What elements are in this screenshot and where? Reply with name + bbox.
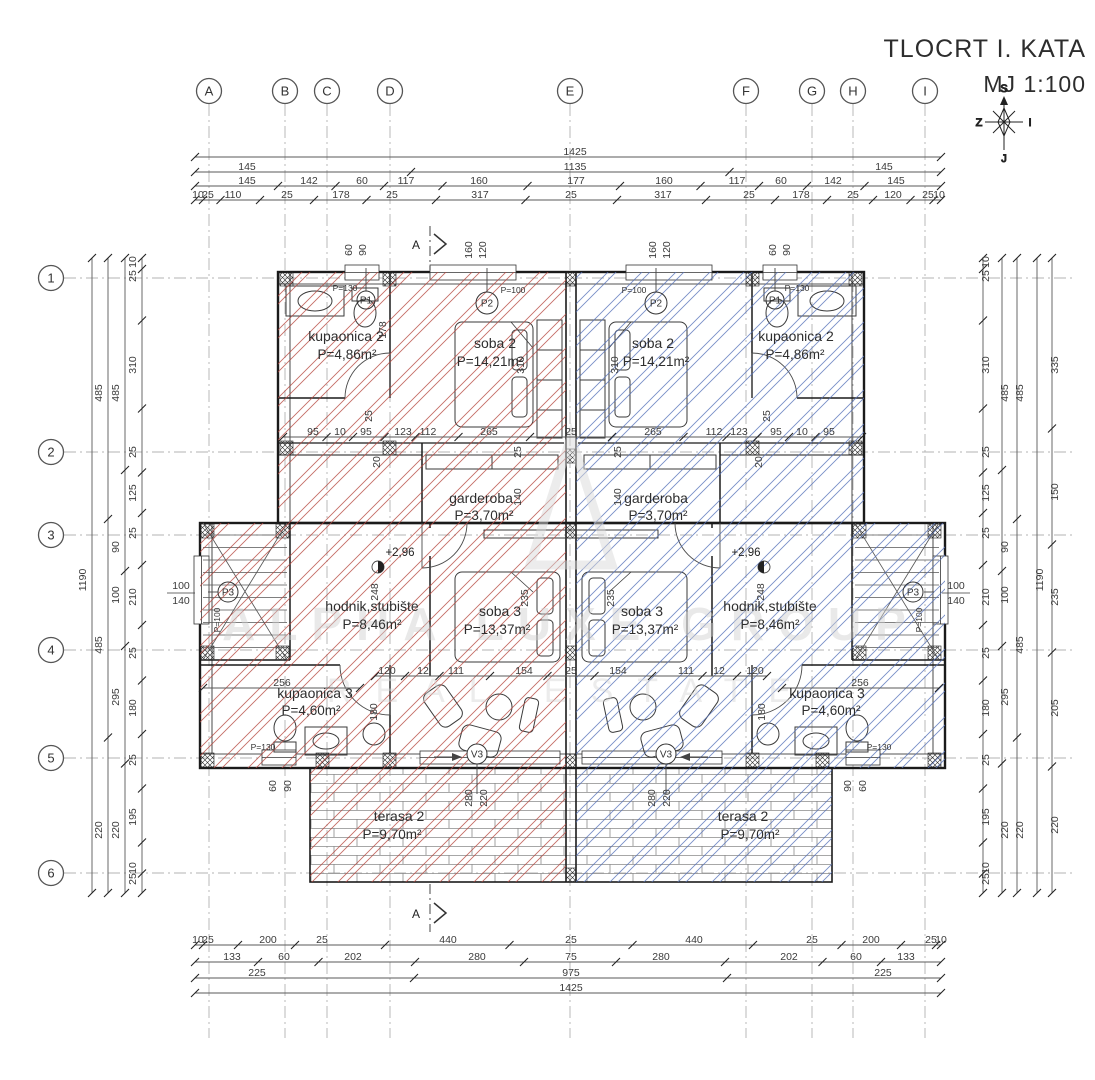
dim-label: 25 — [202, 189, 214, 201]
level-marker-label: +2,96 — [385, 547, 414, 559]
dim-label: 20 — [371, 456, 383, 468]
dim-label: 1425 — [559, 982, 583, 994]
dim-label: 25 — [565, 189, 577, 201]
dim-label: 10 — [127, 862, 139, 874]
dim-label: 25 — [386, 189, 398, 201]
dim-label: 220 — [110, 821, 122, 839]
dim-label: 180 — [368, 703, 380, 721]
dim-label: 235 — [1049, 588, 1061, 606]
dim-label: 220 — [661, 789, 673, 807]
dim-label: 25 — [612, 446, 624, 458]
dim-label: 335 — [1049, 356, 1061, 374]
dim-label: 1425 — [563, 146, 587, 158]
dim-label: 111 — [448, 665, 464, 677]
dim-label: 95 — [770, 426, 782, 438]
dim-label: 10 — [980, 256, 992, 268]
room-area-label: P=8,46m² — [343, 617, 402, 632]
room-area-label: P=14,21m² — [623, 354, 690, 369]
dim-label: 10 — [980, 862, 992, 874]
grid-bubble-label-I: I — [923, 84, 927, 99]
dim-label: 1190 — [77, 569, 89, 592]
dim-label: 220 — [478, 789, 490, 807]
dim-label: 178 — [332, 189, 350, 201]
dim-label: 60 — [356, 175, 368, 187]
dim-label: 25 — [980, 647, 992, 659]
dim-label: 25 — [565, 665, 577, 677]
room-name-label: soba 3 — [621, 603, 663, 619]
hatch-line — [0, 230, 310, 900]
dim-label: 235 — [605, 589, 617, 607]
dim-label: 25 — [980, 446, 992, 458]
dim-label: 120 — [746, 665, 764, 677]
dim-label: 145 — [238, 161, 256, 173]
grid-bubble-label-D: D — [385, 84, 394, 99]
dim-label: 25 — [363, 410, 375, 422]
dim-label: 125 — [980, 484, 992, 502]
room-area-label: P=4,60m² — [802, 703, 861, 718]
compass-north-label: S — [1000, 83, 1007, 95]
section-marker-label: A — [412, 238, 420, 252]
room-area-label: P=13,37m² — [612, 622, 679, 637]
room-area-label: P=3,70m² — [455, 508, 514, 523]
dim-label: 310 — [609, 356, 621, 374]
parapet-note: P=130 — [251, 742, 276, 752]
dim-label: 280 — [463, 789, 475, 807]
dim-label: 265 — [480, 426, 498, 438]
dim-label: 485 — [1014, 384, 1026, 402]
dim-label: 133 — [223, 951, 241, 963]
dim-label: 154 — [609, 665, 627, 677]
dim-label: 25 — [980, 527, 992, 539]
dim-label: 120 — [884, 189, 902, 201]
dim-label: 485 — [1014, 636, 1026, 654]
dim-label: 123 — [730, 426, 748, 438]
parapet-note: P=100 — [622, 285, 647, 295]
dim-label: 145 — [238, 175, 256, 187]
stair-size-top: 100 — [172, 580, 190, 592]
grid-bubble-label-B: B — [281, 84, 290, 99]
dim-label: 25 — [806, 934, 818, 946]
dim-label: 160 — [470, 175, 488, 187]
dim-label: 202 — [780, 951, 798, 963]
dim-label: 25 — [281, 189, 293, 201]
dim-label: 317 — [654, 189, 672, 201]
dim-label: 10 — [933, 189, 945, 201]
dim-label: 140 — [612, 488, 624, 506]
dim-label: 120 — [661, 241, 673, 259]
dim-label: 10 — [796, 426, 808, 438]
dim-label: 60 — [775, 175, 787, 187]
dim-label: 280 — [652, 951, 670, 963]
hatch-line — [804, 230, 1095, 900]
dim-label: 10 — [334, 426, 346, 438]
dim-label: 12 — [713, 665, 725, 677]
window-marker-label: P3 — [907, 588, 920, 599]
dim-label: 100 — [999, 586, 1011, 604]
room-name-label: hodnik,stubište — [325, 598, 419, 614]
hatch-line — [830, 230, 1095, 900]
level-marker-label: +2,96 — [731, 547, 760, 559]
room-area-label: P=4,60m² — [282, 703, 341, 718]
room-area-label: P=14,21m² — [457, 354, 524, 369]
dim-label: 178 — [792, 189, 810, 201]
hatch-line — [0, 230, 352, 900]
grid-bubble-label-6: 6 — [47, 866, 54, 881]
dim-label: 280 — [468, 951, 486, 963]
dim-label: 133 — [897, 951, 915, 963]
window-marker-label: P1 — [360, 296, 373, 307]
drawing-scale: MJ 1:100 — [983, 71, 1086, 97]
stair-size-top: 100 — [947, 580, 965, 592]
dim-label: 117 — [729, 175, 746, 187]
dim-label: 120 — [477, 241, 489, 259]
room-area-label: P=9,70m² — [721, 827, 780, 842]
grid-bubble-label-H: H — [848, 84, 857, 99]
dim-label: 200 — [862, 934, 880, 946]
dim-label: 440 — [439, 934, 457, 946]
dim-label: 25 — [565, 426, 577, 438]
dim-label: 112 — [706, 426, 723, 438]
dim-label: 25 — [565, 934, 577, 946]
hatch-line — [0, 230, 318, 900]
dim-label: 25 — [316, 934, 328, 946]
room-name-label: garderoba — [449, 490, 513, 506]
dim-label: 90 — [110, 541, 122, 553]
dim-label: 90 — [357, 244, 369, 256]
dim-label: 160 — [647, 241, 659, 259]
dim-label: 485 — [110, 384, 122, 402]
parapet-note: P=130 — [333, 283, 358, 293]
dim-label: 20 — [753, 456, 765, 468]
dim-label: 25 — [127, 647, 139, 659]
dim-label: 90 — [999, 541, 1011, 553]
parapet-note: P=100 — [212, 607, 222, 632]
room-name-label: kupaonica 2 — [308, 328, 384, 344]
hatch-line — [0, 230, 352, 900]
dim-label: 25 — [127, 270, 139, 282]
dim-label: 25 — [127, 527, 139, 539]
dim-label: 225 — [248, 967, 266, 979]
grid-bubble-label-3: 3 — [47, 528, 54, 543]
room-area-label: P=4,86m² — [318, 347, 377, 362]
dim-label: 180 — [127, 699, 139, 717]
dim-label: 60 — [767, 244, 779, 256]
dim-label: 95 — [307, 426, 319, 438]
parapet-note: P=100 — [501, 285, 526, 295]
dim-label: 295 — [999, 688, 1011, 706]
dim-label: 160 — [655, 175, 673, 187]
hatch-line — [0, 230, 344, 900]
hatch-line — [838, 230, 1095, 900]
dim-label: 145 — [875, 161, 893, 173]
dim-label: 25 — [743, 189, 755, 201]
dim-label: 111 — [678, 665, 694, 677]
room-name-label: hodnik,stubište — [723, 598, 817, 614]
dim-label: 123 — [394, 426, 412, 438]
dim-label: 150 — [1049, 483, 1061, 501]
room-name-label: soba 2 — [632, 335, 674, 351]
room-area-label: P=3,70m² — [629, 508, 688, 523]
window-marker-label: P3 — [222, 588, 235, 599]
hatch-line — [0, 230, 310, 900]
dim-label: 975 — [562, 967, 580, 979]
dim-label: 25 — [512, 446, 524, 458]
dim-label: 295 — [110, 688, 122, 706]
dim-label: 180 — [980, 699, 992, 717]
hatch-line — [838, 230, 1095, 900]
room-name-label: soba 3 — [479, 603, 521, 619]
dim-label: 485 — [93, 384, 105, 402]
dim-label: 60 — [343, 244, 355, 256]
dim-label: 220 — [93, 821, 105, 839]
dim-label: 25 — [980, 754, 992, 766]
hatch-line — [0, 230, 318, 900]
section-marker-label: A — [412, 907, 420, 921]
dim-label: 60 — [267, 780, 279, 792]
dim-label: 110 — [225, 189, 242, 201]
room-name-label: kupaonica 3 — [277, 685, 353, 701]
dim-label: 142 — [824, 175, 842, 187]
watermark-subtext: REAL ESTATE — [327, 672, 815, 710]
dim-label: 220 — [1014, 821, 1026, 839]
dim-label: 60 — [278, 951, 290, 963]
dim-label: 195 — [127, 808, 139, 826]
dim-label: 25 — [761, 410, 773, 422]
room-area-label: P=4,86m² — [766, 347, 825, 362]
dim-label: 90 — [842, 780, 854, 792]
dim-label: 25 — [127, 873, 139, 885]
room-name-label: terasa 2 — [374, 808, 425, 824]
dim-label: 440 — [685, 934, 703, 946]
dim-label: 202 — [344, 951, 362, 963]
dim-label: 95 — [823, 426, 835, 438]
room-area-label: P=8,46m² — [741, 617, 800, 632]
grid-bubble-label-F: F — [742, 84, 750, 99]
dim-label: 220 — [1049, 816, 1061, 834]
stair-size-bottom: 140 — [947, 595, 965, 607]
dim-label: 160 — [463, 241, 475, 259]
room-name-label: kupaonica 2 — [758, 328, 834, 344]
dim-label: 100 — [110, 586, 122, 604]
room-name-label: garderoba — [624, 490, 688, 506]
dim-label: 1135 — [564, 161, 587, 173]
dim-label: 265 — [644, 426, 662, 438]
compass-east-label: I — [1028, 117, 1031, 129]
dim-label: 25 — [980, 873, 992, 885]
window-marker-label: P1 — [769, 296, 782, 307]
hatch-line — [0, 230, 344, 900]
grid-bubble-label-G: G — [807, 84, 817, 99]
room-name-label: terasa 2 — [718, 808, 769, 824]
dim-label: 10 — [935, 934, 947, 946]
dim-label: 310 — [127, 356, 139, 374]
room-area-label: P=13,37m² — [464, 622, 531, 637]
dim-label: 225 — [874, 967, 892, 979]
dim-label: 200 — [259, 934, 277, 946]
drawing-title: TLOCRT I. KATA — [884, 35, 1086, 63]
dim-label: 60 — [850, 951, 862, 963]
dim-label: 75 — [565, 951, 577, 963]
hatch-line — [804, 230, 1095, 900]
dim-label: 90 — [282, 780, 294, 792]
dim-label: 90 — [781, 244, 793, 256]
dim-label: 310 — [980, 356, 992, 374]
door-marker-label: V3 — [660, 750, 673, 761]
dim-label: 25 — [847, 189, 859, 201]
stair-size-bottom: 140 — [172, 595, 190, 607]
grid-bubble-label-5: 5 — [47, 751, 54, 766]
dim-label: 25 — [202, 934, 214, 946]
room-area-label: P=9,70m² — [363, 827, 422, 842]
dim-label: 125 — [127, 484, 139, 502]
dim-label: 280 — [646, 789, 658, 807]
grid-bubble-label-4: 4 — [47, 643, 54, 658]
grid-bubble-label-2: 2 — [47, 445, 54, 460]
dim-label: 220 — [999, 821, 1011, 839]
dim-label: 25 — [127, 446, 139, 458]
room-name-label: soba 2 — [474, 335, 516, 351]
grid-bubble-label-A: A — [205, 84, 214, 99]
dim-label: 195 — [980, 808, 992, 826]
parapet-note: P=130 — [785, 283, 810, 293]
dim-label: 25 — [980, 270, 992, 282]
dim-label: 205 — [1049, 699, 1061, 717]
window-marker-label: P2 — [481, 299, 494, 310]
floor-plan-canvas: ALPHA LUXE GROUP REAL ESTATE 14251451135… — [0, 0, 1095, 1080]
parapet-note: P=130 — [867, 742, 892, 752]
window-marker-label: P2 — [650, 299, 663, 310]
dim-label: 95 — [360, 426, 372, 438]
dim-label: 154 — [515, 665, 533, 677]
compass-south-label: J — [1001, 153, 1007, 165]
dim-label: 210 — [127, 588, 139, 606]
grid-bubble-label-1: 1 — [47, 271, 54, 286]
dim-label: 145 — [887, 175, 905, 187]
dim-label: 120 — [378, 665, 396, 677]
compass-west-label: Z — [976, 117, 983, 129]
dim-label: 140 — [512, 488, 524, 506]
dim-label: 210 — [980, 588, 992, 606]
dim-label: 112 — [420, 426, 437, 438]
hatch-line — [830, 230, 1095, 900]
grid-bubble-label-C: C — [322, 84, 331, 99]
dim-label: 485 — [93, 636, 105, 654]
dim-label: 25 — [127, 754, 139, 766]
terrace-paving — [310, 768, 832, 882]
dim-label: 12 — [417, 665, 429, 677]
dim-label: 10 — [127, 256, 139, 268]
dim-label: 317 — [471, 189, 489, 201]
dim-label: 485 — [999, 384, 1011, 402]
grid-bubble-label-E: E — [566, 84, 575, 99]
room-name-label: kupaonica 3 — [789, 685, 865, 701]
door-marker-label: V3 — [471, 750, 484, 761]
dim-label: 177 — [567, 175, 585, 187]
dim-label: 117 — [398, 175, 415, 187]
floor-plan-page: ALPHA LUXE GROUP REAL ESTATE 14251451135… — [0, 0, 1095, 1080]
dim-label: 1190 — [1034, 569, 1046, 592]
dim-label: 180 — [756, 703, 768, 721]
dim-label: 60 — [857, 780, 869, 792]
parapet-note: P=100 — [914, 607, 924, 632]
dim-label: 142 — [300, 175, 318, 187]
